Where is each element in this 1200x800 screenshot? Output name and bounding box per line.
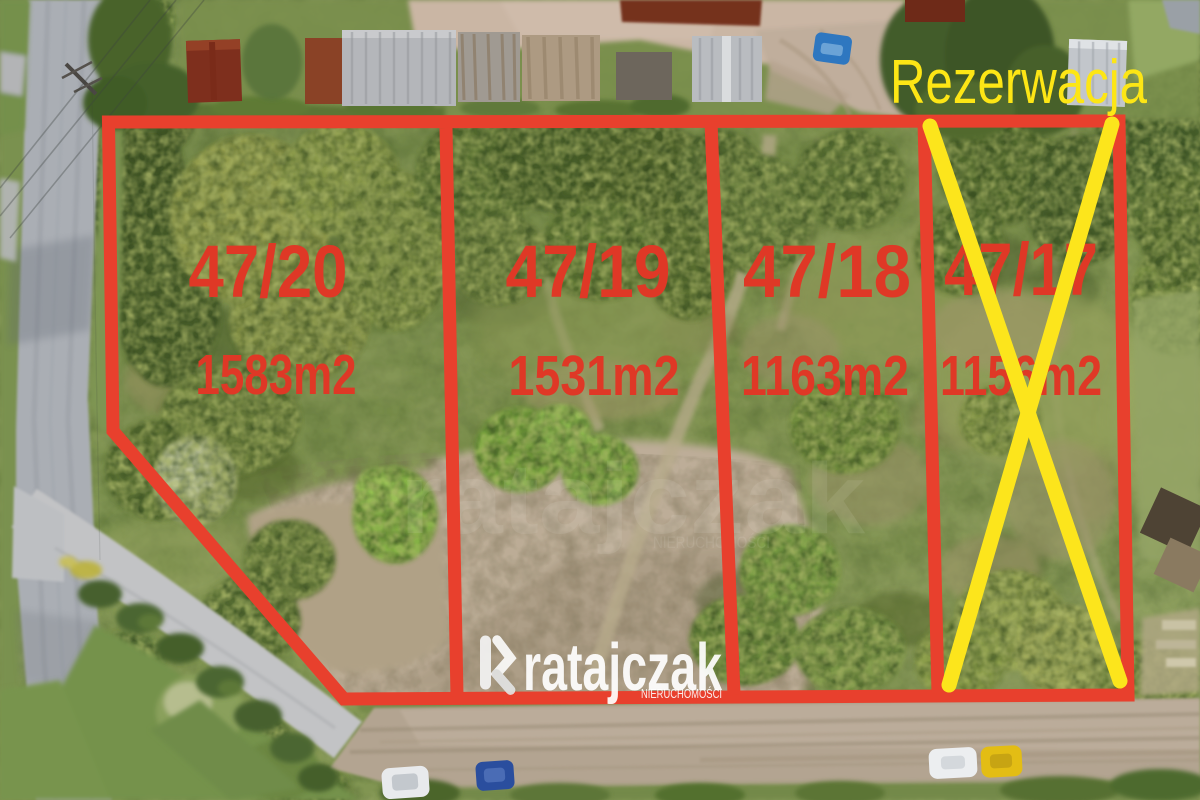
svg-text:1163m2: 1163m2 xyxy=(741,344,909,408)
svg-text:NIERUCHOMOŚCI: NIERUCHOMOŚCI xyxy=(653,533,770,552)
svg-text:Rezerwacja: Rezerwacja xyxy=(890,48,1147,117)
svg-text:47/18: 47/18 xyxy=(743,230,911,313)
svg-text:47/19: 47/19 xyxy=(506,230,671,313)
svg-text:47/20: 47/20 xyxy=(189,230,348,313)
svg-text:1531m2: 1531m2 xyxy=(509,344,680,408)
svg-text:NIERUCHOMOŚCI: NIERUCHOMOŚCI xyxy=(641,686,722,701)
svg-text:1583m2: 1583m2 xyxy=(196,343,357,407)
svg-text:ratajczak: ratajczak xyxy=(400,443,865,555)
